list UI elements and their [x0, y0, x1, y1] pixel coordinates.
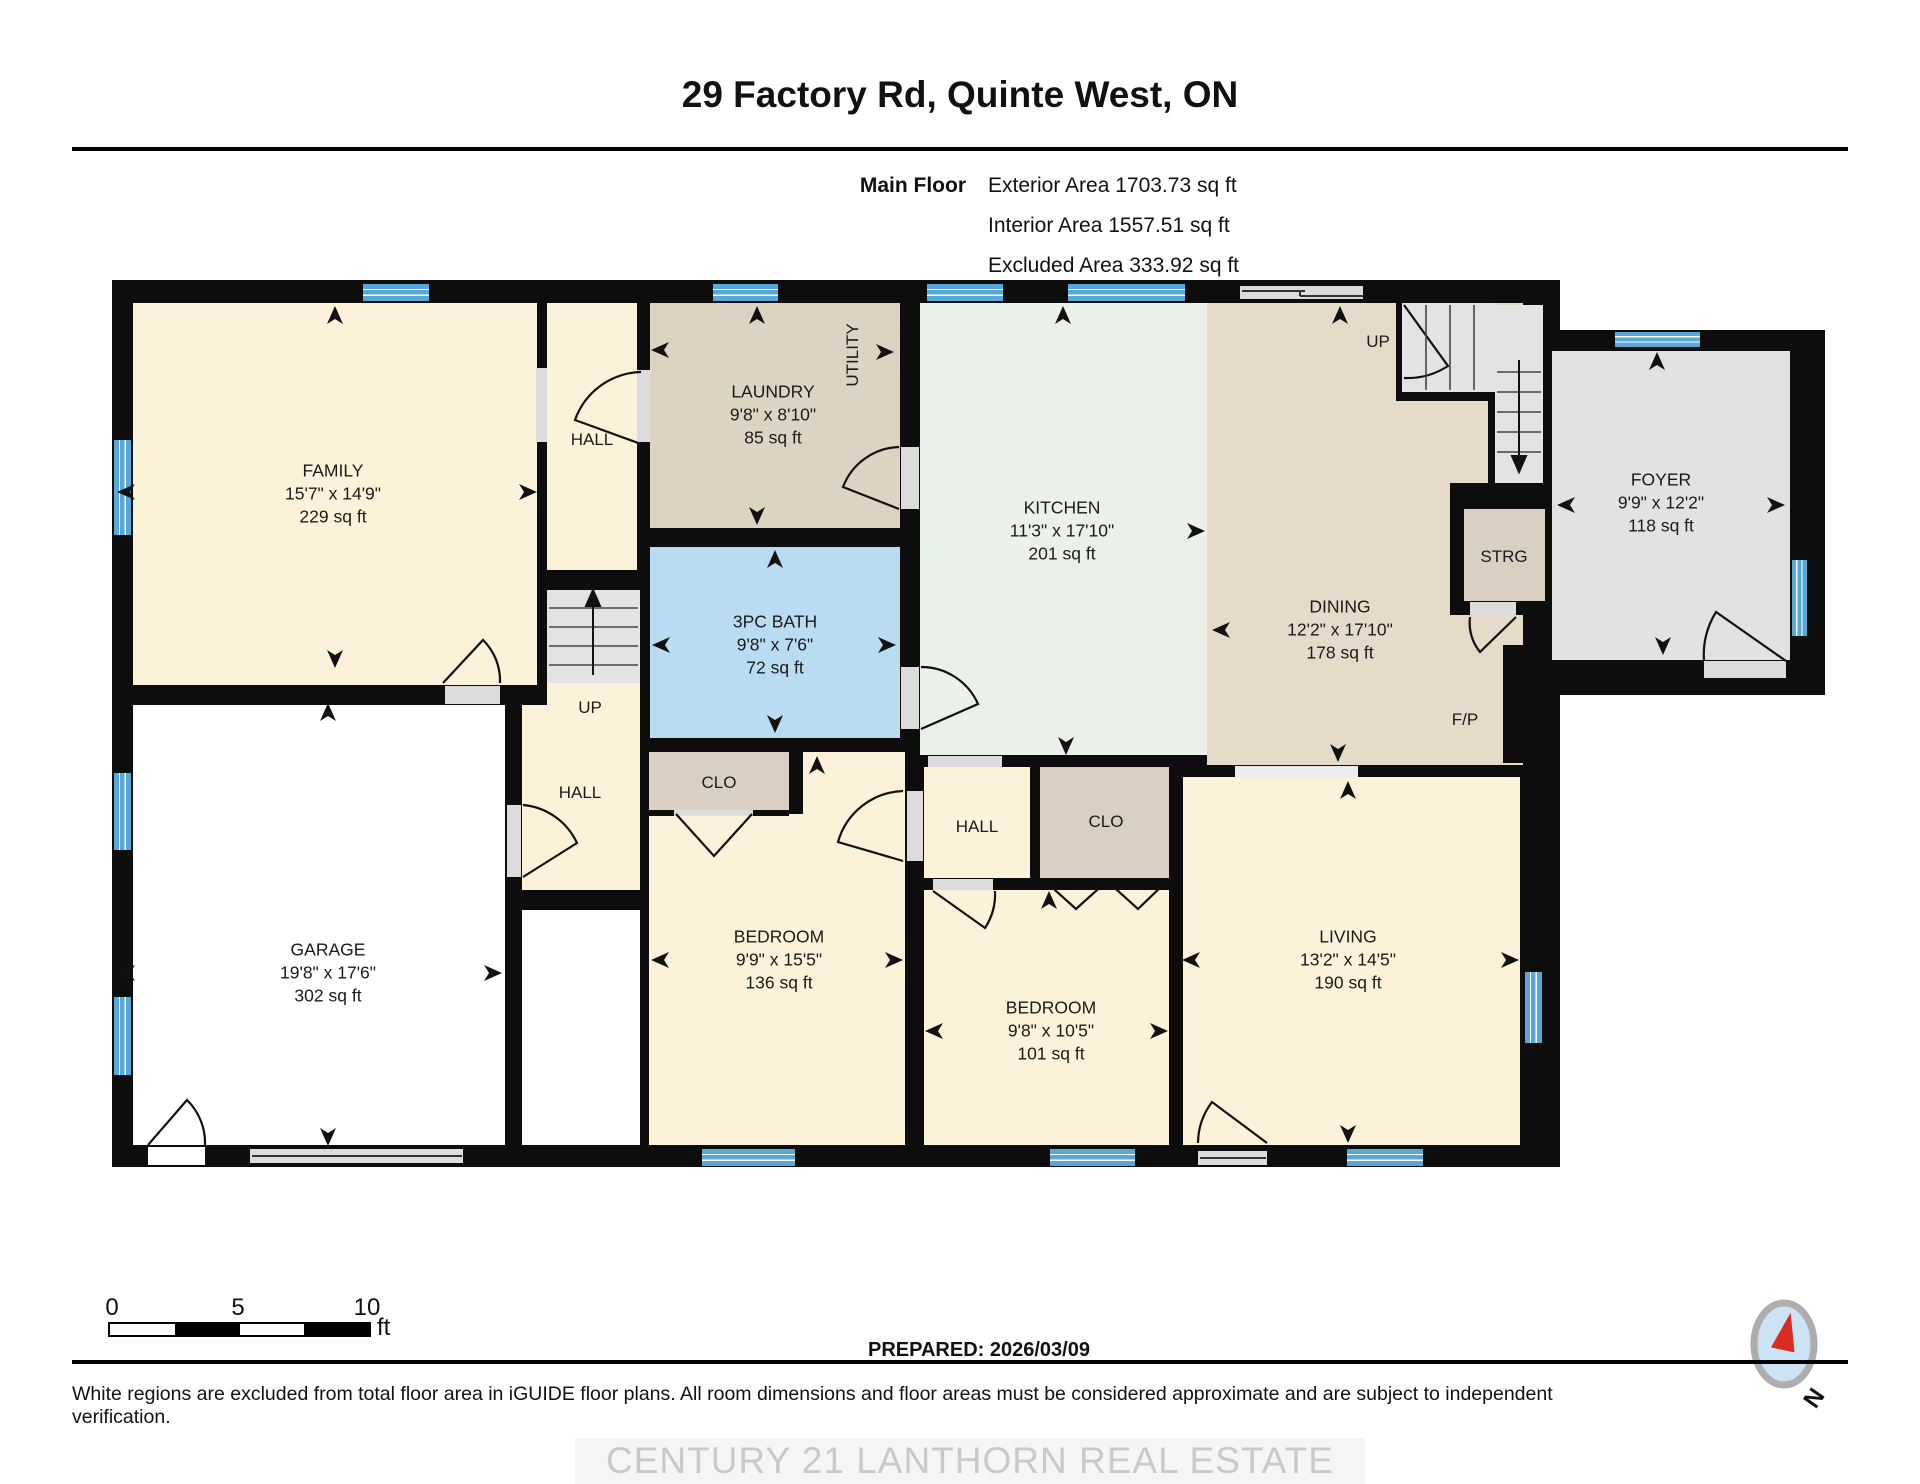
- label-garage: GARAGE19'8" x 17'6"302 sq ft: [280, 938, 376, 1007]
- label-utility: UTILITY: [843, 323, 863, 386]
- flight-wall: [1488, 392, 1495, 483]
- floor-plan-page: 29 Factory Rd, Quinte West, ON Main Floo…: [0, 0, 1920, 1484]
- garage-entry-opening: [148, 1147, 205, 1165]
- label-hall-top: HALL: [571, 430, 614, 450]
- label-family: FAMILY15'7" x 14'9"229 sq ft: [285, 459, 381, 528]
- closet-left-stub1: [649, 810, 674, 816]
- scale-unit: ft: [377, 1314, 390, 1342]
- window-foyer-top: [1615, 332, 1700, 347]
- label-dining: DINING12'2" x 17'10"178 sq ft: [1287, 595, 1393, 664]
- floor-plan: FAMILY15'7" x 14'9"229 sq ft LAUNDRY9'8"…: [0, 0, 1920, 1484]
- label-bath: 3PC BATH9'8" x 7'6"72 sq ft: [733, 610, 817, 679]
- closet-left-opening: [674, 810, 753, 816]
- prepared-date: PREPARED: 2026/03/09: [868, 1339, 1090, 1362]
- fireplace-block: [1503, 645, 1523, 763]
- closet-left-wall: [789, 752, 803, 814]
- room-garage: [133, 705, 505, 1145]
- label-up-hall: UP: [578, 698, 602, 718]
- label-bedroom2: BEDROOM9'8" x 10'5"101 sq ft: [1006, 996, 1096, 1065]
- label-hall-lower: HALL: [559, 783, 602, 803]
- window-family-left: [114, 440, 131, 535]
- living-patio-door: [1198, 1151, 1267, 1165]
- opening-family-hall: [536, 368, 547, 442]
- opening-bedroom1: [907, 791, 923, 861]
- label-hall-mid: HALL: [956, 817, 999, 837]
- brokerage-watermark: CENTURY 21 LANTHORN REAL ESTATE LTD., Br…: [575, 1438, 1365, 1484]
- opening-laundry-kitchen: [901, 447, 919, 509]
- opening-dining-living: [1235, 766, 1358, 777]
- window-garage1: [114, 773, 131, 850]
- garage-overhead-door: [250, 1149, 463, 1163]
- stairs-hall: [547, 590, 640, 683]
- label-foyer: FOYER9'9" x 12'2"118 sq ft: [1618, 468, 1704, 537]
- opening-hall-garage: [507, 805, 521, 877]
- window-garage2: [114, 997, 131, 1075]
- label-kitchen: KITCHEN11'3" x 17'10"201 sq ft: [1010, 496, 1114, 565]
- scale-tick-0: 0: [105, 1294, 118, 1322]
- label-laundry: LAUNDRY9'8" x 8'10"85 sq ft: [730, 380, 816, 449]
- opening-bath: [901, 667, 919, 729]
- window-family-top: [363, 284, 429, 301]
- opening-kitchen-hall: [928, 756, 1002, 767]
- label-fireplace: F/P: [1452, 710, 1478, 730]
- excluded-strip: [522, 910, 640, 1145]
- opening-strg: [1470, 602, 1516, 615]
- window-bedroom1: [702, 1149, 795, 1166]
- scale-tick-5: 5: [231, 1294, 244, 1322]
- opening-family-door: [445, 686, 500, 704]
- footer-divider: [72, 1360, 1848, 1364]
- window-kitchen1: [927, 284, 1003, 301]
- disclaimer-text: White regions are excluded from total fl…: [72, 1383, 1592, 1429]
- opening-hall-laundry: [637, 370, 650, 442]
- stairs-up: [1402, 303, 1495, 392]
- stairs-down-flight: [1495, 305, 1543, 483]
- label-clo-left: CLO: [702, 773, 737, 793]
- label-strg: STRG: [1480, 547, 1527, 567]
- label-bedroom1: BEDROOM9'9" x 15'5"136 sq ft: [734, 925, 824, 994]
- closet-left-stub2: [753, 810, 789, 816]
- label-up-stairs: UP: [1366, 332, 1390, 352]
- stairs-wall-left: [1396, 303, 1402, 401]
- front-door: [1704, 661, 1786, 678]
- label-living: LIVING13'2" x 14'5"190 sq ft: [1300, 925, 1396, 994]
- window-kitchen2: [1068, 284, 1185, 301]
- stairs-wall-bottom: [1402, 392, 1495, 401]
- window-living-right: [1525, 972, 1542, 1043]
- window-living-bottom: [1347, 1149, 1423, 1166]
- window-foyer-right: [1792, 560, 1807, 636]
- window-bedroom2: [1050, 1149, 1135, 1166]
- dining-slider-door: [1240, 286, 1363, 299]
- label-clo-right: CLO: [1089, 812, 1124, 832]
- opening-bedroom2: [933, 879, 993, 890]
- scale-bar: [108, 1322, 371, 1337]
- window-hall-top: [713, 284, 778, 301]
